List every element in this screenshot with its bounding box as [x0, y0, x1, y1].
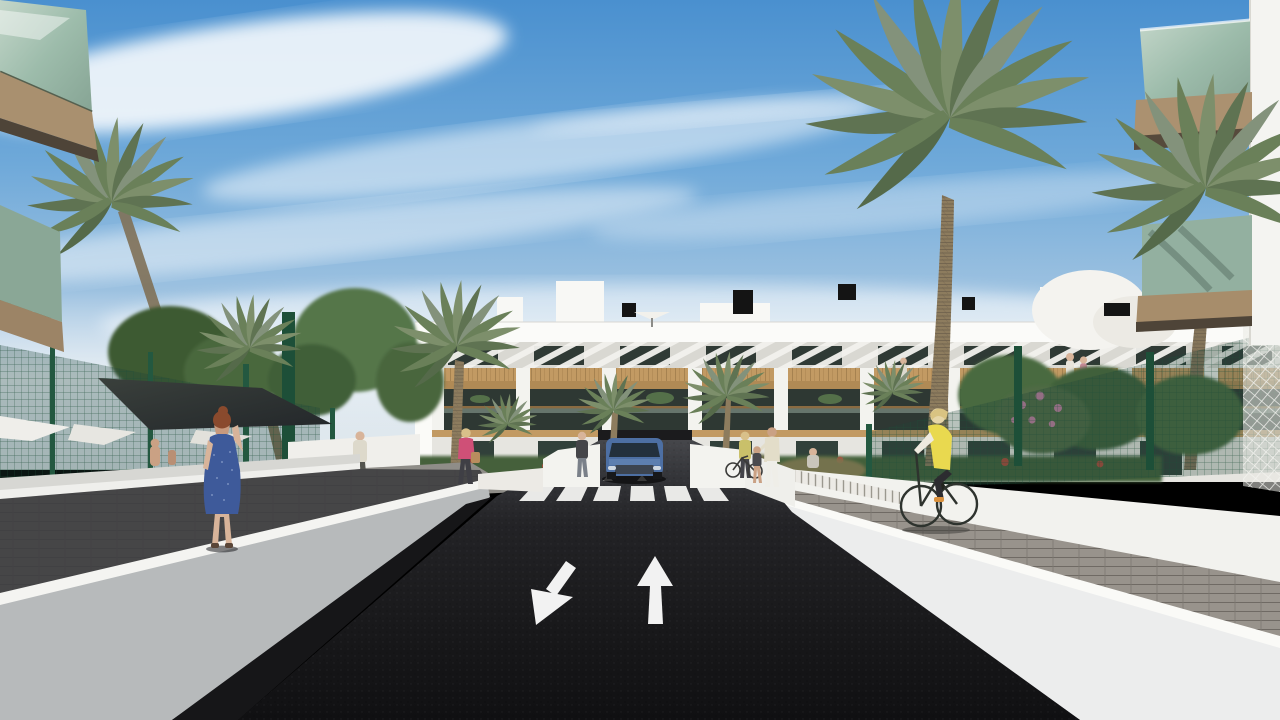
car-grille: [615, 465, 654, 474]
handbag: [471, 452, 480, 463]
shoe: [934, 497, 944, 502]
car-windshield: [609, 443, 660, 457]
car-headlight: [653, 466, 661, 470]
car[interactable]: [602, 438, 666, 484]
downlight-fixture: [1104, 303, 1130, 316]
scene: [0, 0, 1280, 720]
render-viewport: [0, 0, 1280, 720]
car-headlight: [608, 466, 616, 470]
